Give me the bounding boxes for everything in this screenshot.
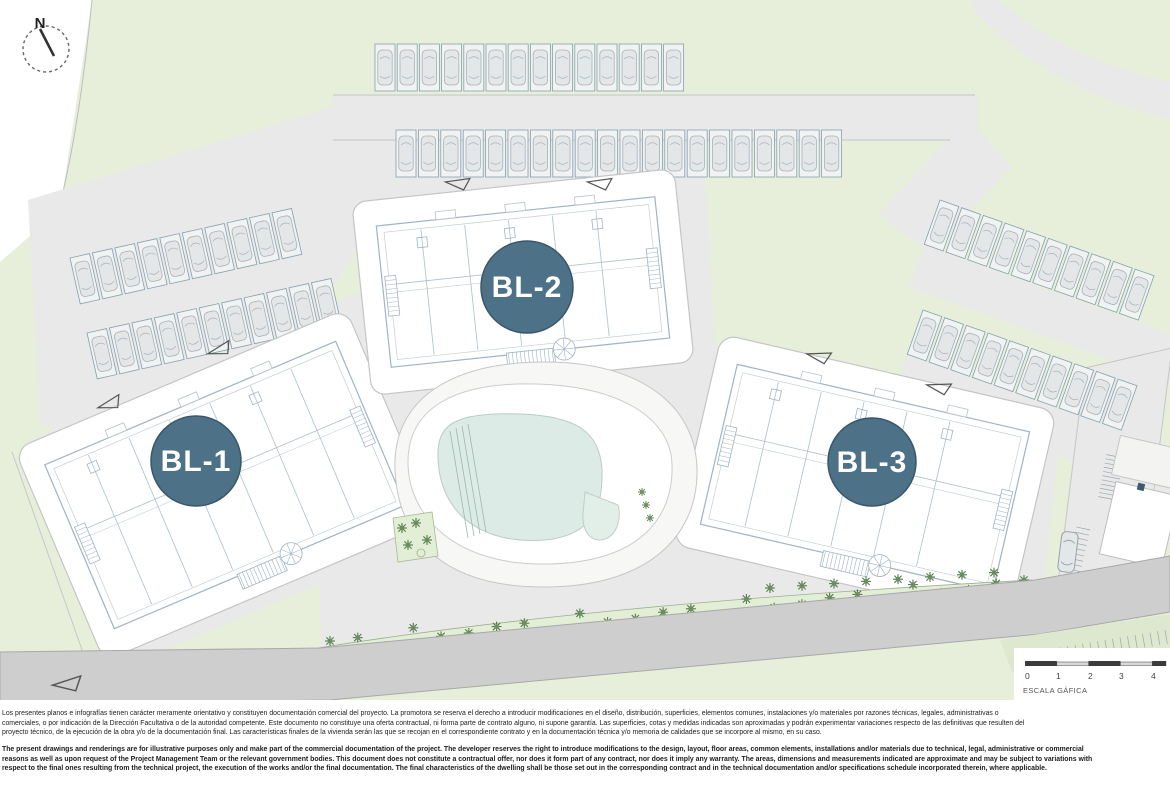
scale-tick-2: 2: [1088, 671, 1093, 681]
badge-bl3-label: BL-3: [837, 446, 908, 479]
disclaimer-es-line2: comerciales, o por indicación de la Dire…: [2, 719, 1168, 729]
tree-icon: [646, 514, 654, 522]
disclaimer-en-line2: reasons as well as upon request of the P…: [2, 755, 1168, 765]
badge-bl2-label: BL-2: [492, 271, 563, 304]
compass-north-label: N: [35, 15, 46, 32]
disclaimer-english: The present drawings and renderings are …: [2, 745, 1168, 774]
badge-bl2: BL-2: [481, 241, 573, 333]
scale-tick-4: 4: [1151, 671, 1156, 681]
site-plan-svg: BL-1 BL-2 BL-3 N 0 1 2 3 4: [0, 0, 1170, 700]
disclaimer-en-line1: The present drawings and renderings are …: [2, 745, 1168, 755]
disclaimer-en-line3: respect to the final ones resulting from…: [2, 764, 1168, 774]
garden-patch: [393, 512, 438, 562]
scale-bar-label: ESCALA GÁFICA: [1023, 686, 1087, 695]
scale-bar: 0 1 2 3 4 ESCALA GÁFICA: [1014, 648, 1170, 700]
site-plan-page: BL-1 BL-2 BL-3 N 0 1 2 3 4: [0, 0, 1170, 785]
tree-icon: [403, 540, 413, 550]
disclaimer-es-line1: Los presentes planos e infografías tiene…: [2, 709, 1168, 719]
pool-area: [395, 362, 697, 587]
site-plan: BL-1 BL-2 BL-3 N 0 1 2 3 4: [0, 0, 1170, 700]
tree-icon: [411, 518, 421, 528]
tree-icon: [642, 501, 650, 509]
tree-icon: [422, 535, 432, 545]
badge-bl1-label: BL-1: [161, 445, 232, 478]
scale-tick-0: 0: [1025, 671, 1030, 681]
badge-bl3: BL-3: [828, 418, 916, 506]
scale-tick-1: 1: [1056, 671, 1061, 681]
disclaimer-spanish: Los presentes planos e infografías tiene…: [2, 709, 1168, 738]
disclaimer-es-line3: proyecto técnico, de la ejecución de la …: [2, 728, 1168, 738]
badge-bl1: BL-1: [151, 416, 241, 506]
scale-tick-3: 3: [1119, 671, 1124, 681]
tree-icon: [397, 523, 407, 533]
tree-icon: [638, 488, 646, 496]
